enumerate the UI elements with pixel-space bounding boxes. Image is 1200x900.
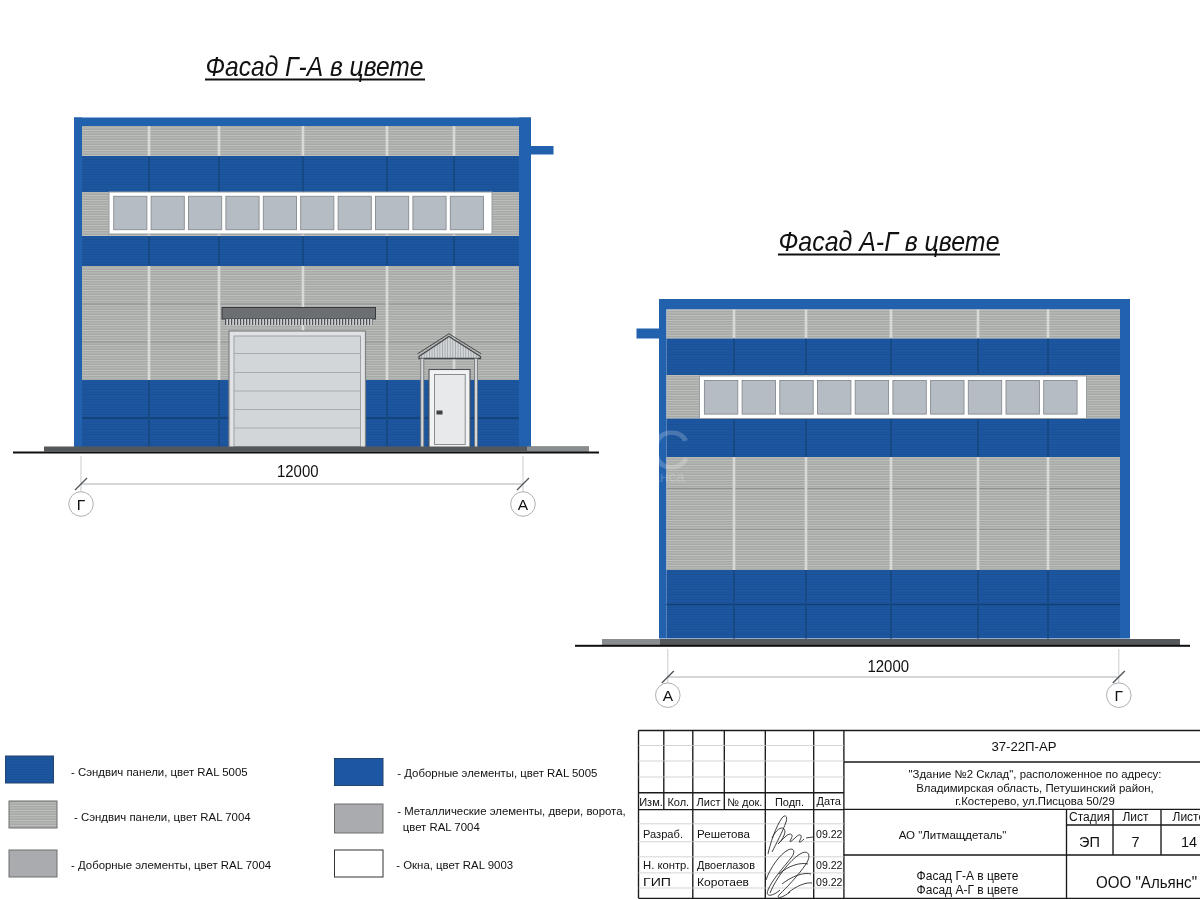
- svg-text:Фасад А-Г в цвете: Фасад А-Г в цвете: [917, 883, 1019, 897]
- svg-text:Н. контр.: Н. контр.: [643, 858, 690, 872]
- svg-text:анса: анса: [652, 468, 685, 485]
- svg-text:- Металлические элементы, двер: - Металлические элементы, двери, ворота,: [397, 805, 625, 817]
- svg-text:А: А: [518, 496, 529, 513]
- svg-text:Фасад Г-А в цвете: Фасад Г-А в цвете: [917, 869, 1019, 883]
- svg-text:- Окна, цвет RAL 9003: - Окна, цвет RAL 9003: [396, 859, 513, 871]
- svg-text:37-22П-АР: 37-22П-АР: [991, 739, 1056, 754]
- svg-text:Подп.: Подп.: [775, 796, 804, 808]
- svg-text:- Сэндвич панели, цвет RAL 700: - Сэндвич панели, цвет RAL 7004: [74, 811, 251, 823]
- svg-text:Коротаев: Коротаев: [697, 875, 749, 889]
- svg-text:12000: 12000: [868, 657, 910, 676]
- svg-text:Стадия: Стадия: [1069, 810, 1110, 824]
- svg-text:А: А: [663, 687, 674, 704]
- svg-text:№ док.: № док.: [727, 796, 762, 808]
- svg-text:ЭП: ЭП: [1079, 834, 1100, 850]
- svg-text:АО "Литмащдеталь": АО "Литмащдеталь": [899, 829, 1007, 841]
- svg-text:Решетова: Решетова: [697, 827, 750, 841]
- svg-text:ГИП: ГИП: [643, 875, 671, 889]
- svg-text:ООО "Альянс": ООО "Альянс": [1096, 873, 1197, 891]
- svg-text:Владимирская область, Петушинс: Владимирская область, Петушинский район,: [916, 782, 1154, 794]
- svg-text:Разраб.: Разраб.: [643, 827, 683, 841]
- svg-text:09.22: 09.22: [816, 858, 843, 872]
- svg-text:12000: 12000: [277, 462, 319, 481]
- svg-text:Лист: Лист: [697, 796, 721, 808]
- svg-text:"Здание №2 Склад", расположенн: "Здание №2 Склад", расположенное по адре…: [909, 768, 1162, 780]
- svg-text:Двоеглазов: Двоеглазов: [697, 858, 755, 872]
- svg-text:Изм.: Изм.: [639, 796, 663, 808]
- svg-text:- Доборные элементы, цвет RAL: - Доборные элементы, цвет RAL 7004: [71, 859, 271, 871]
- svg-text:Кол.: Кол.: [667, 796, 689, 808]
- svg-text:Листов: Листов: [1173, 810, 1200, 824]
- svg-text:Дата: Дата: [817, 795, 842, 807]
- svg-text:7: 7: [1131, 834, 1139, 850]
- svg-text:Г: Г: [77, 496, 86, 513]
- svg-text:Фасад А-Г в цвете: Фасад А-Г в цвете: [779, 226, 1000, 257]
- svg-text:14: 14: [1181, 834, 1197, 850]
- svg-text:г.Костерево, ул.Писцова 50/29: г.Костерево, ул.Писцова 50/29: [955, 795, 1114, 807]
- svg-text:Фасад Г-А в цвете: Фасад Г-А в цвете: [206, 51, 424, 82]
- svg-text:Г: Г: [1115, 687, 1124, 704]
- svg-text:09.22: 09.22: [816, 827, 843, 841]
- svg-text:цвет RAL 7004: цвет RAL 7004: [403, 821, 480, 833]
- svg-text:- Доборные элементы, цвет RAL: - Доборные элементы, цвет RAL 5005: [397, 767, 597, 779]
- svg-text:Лист: Лист: [1122, 810, 1149, 824]
- svg-text:09.22: 09.22: [816, 875, 843, 889]
- svg-text:- Сэндвич панели, цвет RAL 500: - Сэндвич панели, цвет RAL 5005: [71, 766, 248, 778]
